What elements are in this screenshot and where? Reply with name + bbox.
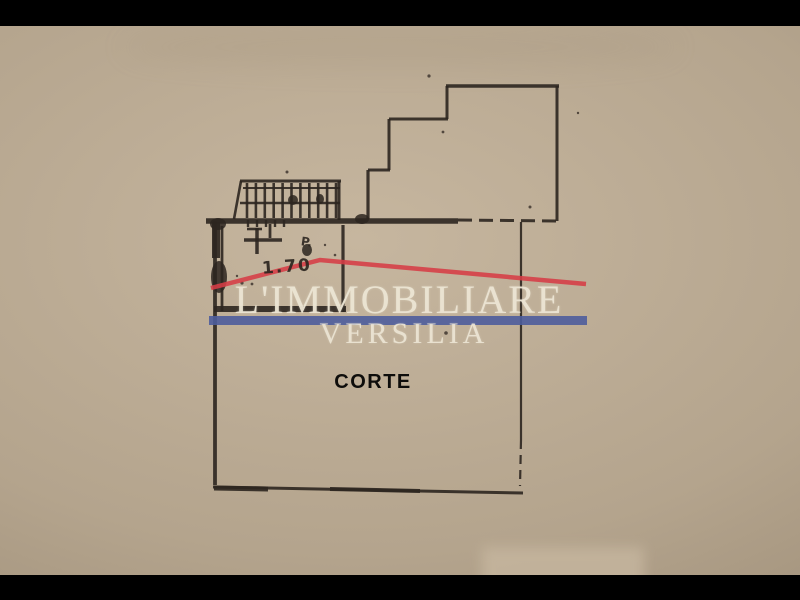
- plan-annotation-mark: P.: [300, 235, 313, 248]
- courtyard-label: CORTE: [334, 372, 412, 392]
- letterbox-top-bar: [0, 0, 800, 26]
- letterbox-bottom-bar: [0, 575, 800, 600]
- watermark-agency-name: L'IMMOBILIARE: [235, 280, 564, 320]
- plan-height-annotation: 1.70: [261, 257, 312, 277]
- scanned-floorplan-photo: L'IMMOBILIARE VERSILIA P. 1.70 CORTE: [0, 0, 800, 600]
- watermark-agency-subtitle: VERSILIA: [320, 319, 489, 349]
- photo-viewer: L'IMMOBILIARE VERSILIA P. 1.70 CORTE: [0, 0, 800, 600]
